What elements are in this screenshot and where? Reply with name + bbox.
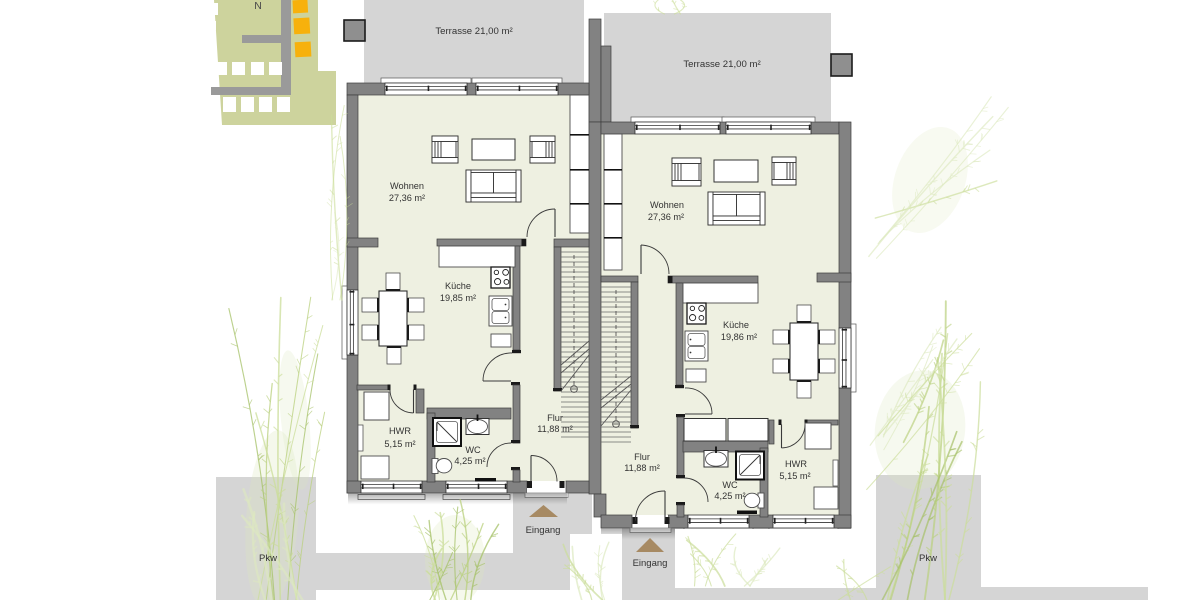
svg-text:Küche: Küche — [445, 281, 471, 291]
svg-text:4,25 m²: 4,25 m² — [454, 456, 485, 466]
svg-text:5,15 m²: 5,15 m² — [779, 471, 810, 481]
svg-text:Wohnen: Wohnen — [650, 200, 684, 210]
svg-text:Eingang: Eingang — [633, 558, 668, 569]
svg-text:27,36 m²: 27,36 m² — [389, 193, 425, 203]
svg-text:Pkw: Pkw — [919, 553, 937, 564]
svg-text:27,36 m²: 27,36 m² — [648, 212, 684, 222]
svg-text:Küche: Küche — [723, 320, 749, 330]
svg-text:Terrasse 21,00 m²: Terrasse 21,00 m² — [683, 59, 761, 70]
svg-text:19,85 m²: 19,85 m² — [440, 293, 476, 303]
svg-text:Flur: Flur — [634, 452, 650, 462]
svg-text:19,86 m²: 19,86 m² — [721, 332, 757, 342]
svg-text:Wohnen: Wohnen — [390, 181, 424, 191]
svg-text:HWR: HWR — [389, 426, 411, 436]
svg-text:WC: WC — [722, 480, 738, 490]
svg-text:Flur: Flur — [547, 413, 563, 423]
svg-text:Pkw: Pkw — [259, 553, 277, 564]
svg-text:11,88 m²: 11,88 m² — [537, 424, 573, 434]
svg-text:HWR: HWR — [785, 459, 807, 469]
svg-text:Eingang: Eingang — [526, 525, 561, 536]
svg-text:5,15 m²: 5,15 m² — [384, 439, 415, 449]
svg-text:11,88 m²: 11,88 m² — [624, 463, 660, 473]
svg-text:Terrasse 21,00 m²: Terrasse 21,00 m² — [435, 26, 513, 37]
svg-text:N: N — [254, 0, 262, 12]
svg-text:WC: WC — [465, 445, 481, 455]
svg-text:4,25 m²: 4,25 m² — [714, 491, 745, 501]
